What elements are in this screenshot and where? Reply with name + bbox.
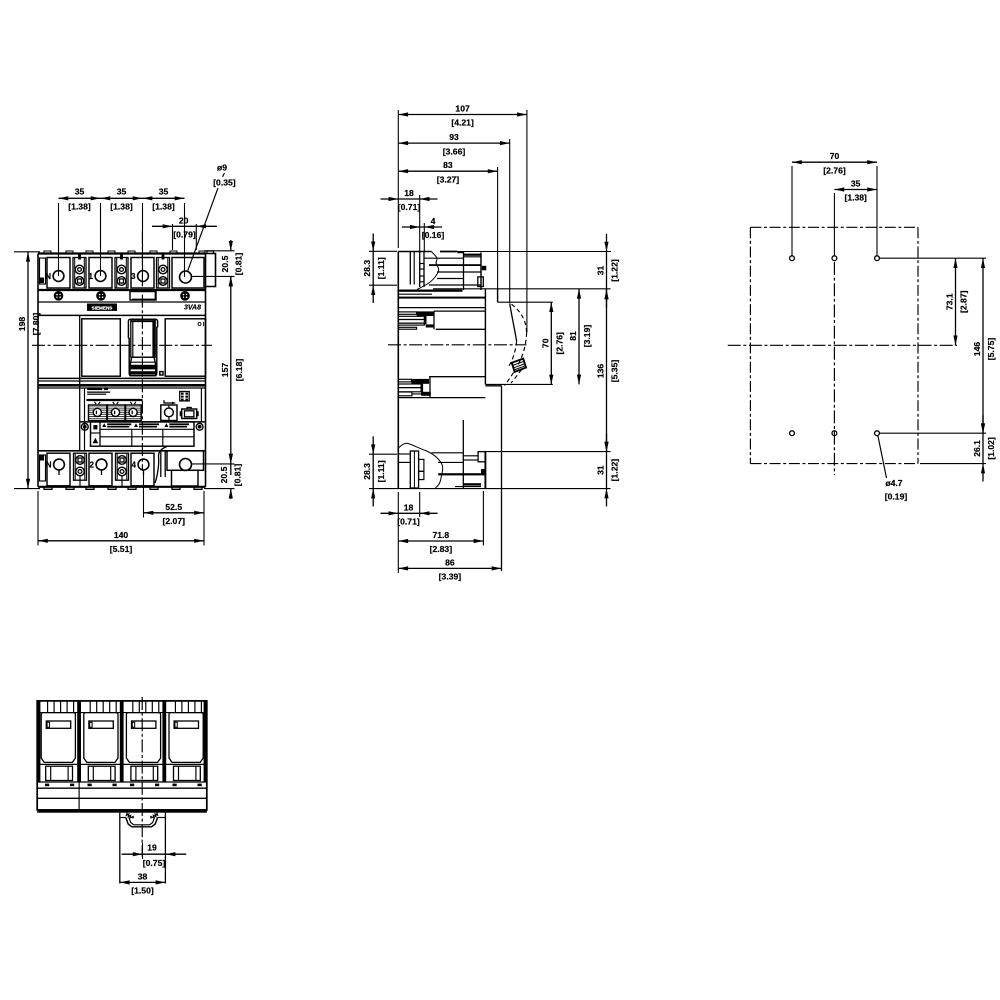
svg-text:[0.79]: [0.79]: [173, 229, 196, 239]
svg-text:[1.22]: [1.22]: [610, 459, 620, 482]
svg-text:[0.16]: [0.16]: [422, 230, 445, 240]
svg-text:18: 18: [404, 188, 414, 198]
svg-text:35: 35: [851, 179, 861, 189]
svg-text:31: 31: [596, 266, 606, 276]
svg-text:4: 4: [132, 461, 137, 470]
svg-text:136: 136: [596, 364, 606, 379]
svg-text:ø4.7: ø4.7: [885, 478, 902, 488]
svg-text:26.1: 26.1: [972, 440, 982, 457]
svg-text:[2.76]: [2.76]: [823, 165, 846, 175]
svg-text:2: 2: [90, 461, 95, 470]
svg-text:1: 1: [89, 272, 94, 281]
svg-text:[0.71]: [0.71]: [398, 202, 421, 212]
svg-text:[0.35]: [0.35]: [213, 177, 236, 187]
svg-text:18: 18: [404, 502, 414, 512]
svg-text:[1.38]: [1.38]: [844, 193, 867, 203]
svg-text:38: 38: [138, 871, 148, 881]
svg-text:[1.38]: [1.38]: [68, 202, 91, 212]
svg-text:20.5: 20.5: [219, 466, 229, 483]
svg-text:[0.81]: [0.81]: [233, 464, 243, 487]
svg-text:73.1: 73.1: [945, 293, 955, 310]
svg-text:SIEMENS: SIEMENS: [92, 305, 113, 310]
svg-text:20.5: 20.5: [220, 255, 230, 272]
svg-text:[3.66]: [3.66]: [443, 146, 466, 156]
svg-text:81: 81: [568, 331, 578, 341]
svg-text:[3.19]: [3.19]: [582, 325, 592, 348]
svg-text:83: 83: [443, 160, 453, 170]
svg-text:[5.51]: [5.51]: [110, 544, 133, 554]
svg-text:93: 93: [449, 132, 459, 142]
svg-text:4: 4: [431, 216, 436, 226]
svg-text:N: N: [46, 461, 52, 470]
svg-text:[6.18]: [6.18]: [234, 359, 244, 382]
svg-text:31: 31: [596, 465, 606, 475]
svg-text:19: 19: [147, 843, 157, 853]
svg-text:[1.11]: [1.11]: [376, 460, 386, 482]
svg-text:[0.71]: [0.71]: [397, 517, 420, 527]
svg-text:[4.21]: [4.21]: [451, 118, 474, 128]
svg-text:198: 198: [17, 317, 27, 332]
svg-text:140: 140: [114, 530, 129, 540]
svg-text:ø9: ø9: [217, 162, 227, 172]
svg-text:71.8: 71.8: [432, 530, 449, 540]
svg-text:35: 35: [117, 187, 127, 197]
svg-text:70: 70: [830, 151, 840, 161]
svg-text:[2.07]: [2.07]: [163, 516, 186, 526]
svg-text:[7.80]: [7.80]: [31, 313, 41, 336]
svg-text:52.5: 52.5: [165, 502, 182, 512]
svg-text:N: N: [45, 272, 51, 281]
svg-text:146: 146: [972, 342, 982, 357]
svg-text:70: 70: [540, 338, 550, 348]
svg-text:[0.81]: [0.81]: [234, 253, 244, 276]
svg-text:[2.87]: [2.87]: [959, 290, 969, 313]
svg-text:86: 86: [445, 557, 455, 567]
svg-text:[0.19]: [0.19]: [885, 492, 908, 502]
svg-text:28.3: 28.3: [362, 260, 372, 277]
svg-text:[1.02]: [1.02]: [986, 437, 996, 460]
svg-text:[2.83]: [2.83]: [430, 544, 453, 554]
svg-text:[1.50]: [1.50]: [131, 886, 154, 896]
svg-text:[1.38]: [1.38]: [110, 202, 133, 212]
svg-text:[2.76]: [2.76]: [554, 332, 564, 355]
svg-text:[1.11]: [1.11]: [376, 257, 386, 279]
svg-text:3VA8: 3VA8: [184, 305, 201, 312]
svg-text:20: 20: [179, 215, 189, 225]
svg-text:[5.75]: [5.75]: [986, 338, 996, 361]
svg-text:[1.22]: [1.22]: [610, 259, 620, 282]
svg-text:O: O: [197, 322, 201, 328]
svg-text:157: 157: [220, 363, 230, 378]
svg-text:107: 107: [455, 104, 470, 114]
svg-text:28.3: 28.3: [362, 463, 372, 480]
svg-text:[3.39]: [3.39]: [439, 572, 462, 582]
svg-text:3: 3: [131, 272, 136, 281]
svg-text:[3.27]: [3.27]: [437, 174, 460, 184]
svg-text:35: 35: [75, 187, 85, 197]
svg-text:35: 35: [159, 187, 169, 197]
svg-text:[1.38]: [1.38]: [152, 202, 175, 212]
svg-text:[0.75]: [0.75]: [143, 858, 166, 868]
svg-text:[5.35]: [5.35]: [610, 360, 620, 383]
